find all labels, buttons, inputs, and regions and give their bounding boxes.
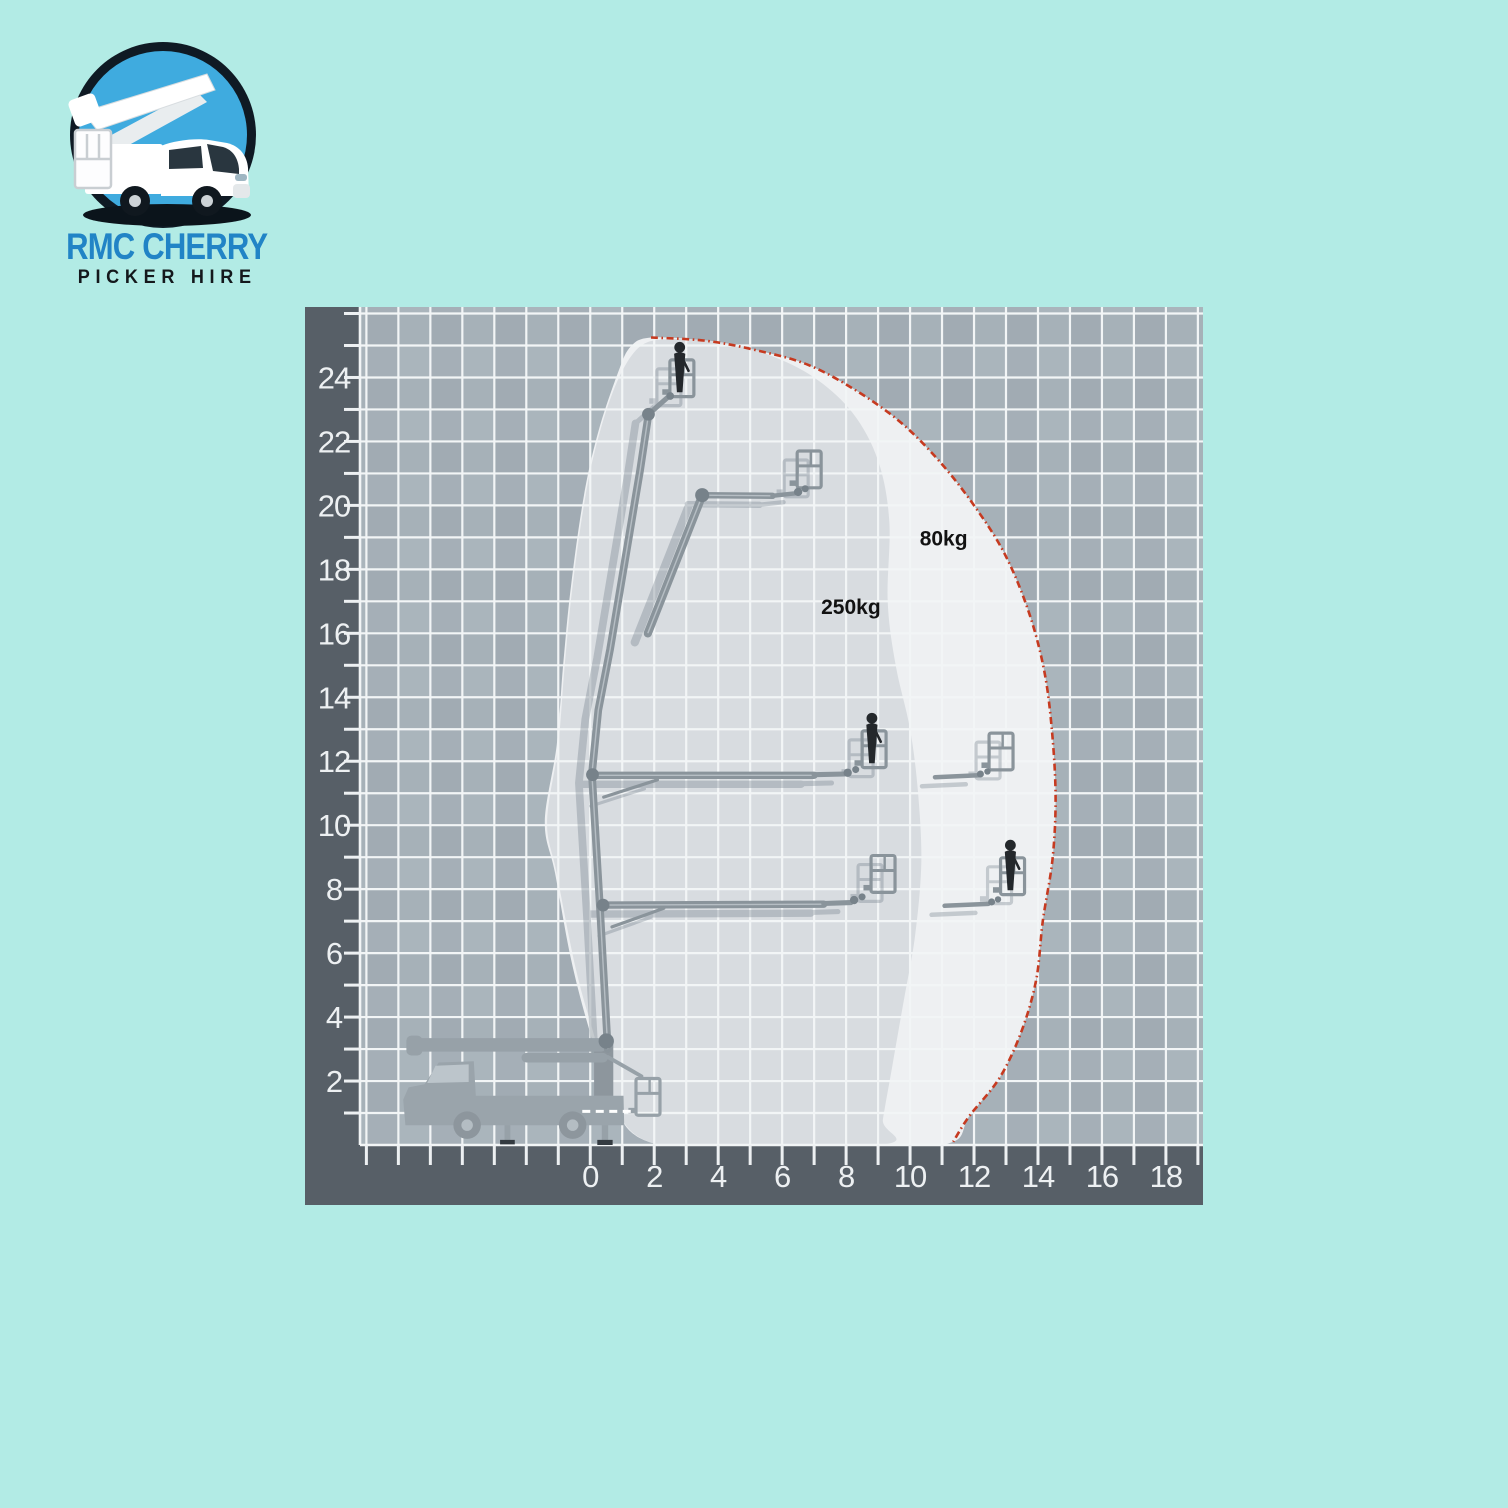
x-tick-label: 14 — [1022, 1159, 1055, 1194]
envelope-diagram: 02468101214161824681012141618202224 80kg… — [305, 307, 1203, 1205]
page-background: RMC CHERRY PICKER HIRE 02468101214161824… — [0, 0, 1508, 1508]
y-tick-label: 10 — [318, 808, 351, 843]
y-tick-label: 6 — [326, 936, 342, 971]
brand-tagline: PICKER HIRE — [47, 266, 287, 290]
y-tick-label: 2 — [326, 1064, 342, 1099]
y-tick-label: 20 — [318, 488, 351, 523]
y-tick-label: 14 — [318, 680, 351, 715]
x-tick-label: 16 — [1086, 1159, 1118, 1194]
x-tick-label: 10 — [894, 1159, 927, 1194]
x-tick-label: 6 — [774, 1159, 790, 1194]
x-tick-label: 0 — [582, 1159, 599, 1194]
y-tick-label: 18 — [318, 552, 350, 587]
y-tick-label: 4 — [326, 1000, 343, 1035]
x-tick-label: 12 — [958, 1159, 990, 1194]
y-tick-label: 8 — [326, 872, 342, 907]
working-envelope-chart: 02468101214161824681012141618202224 80kg… — [305, 307, 1203, 1205]
x-tick-label: 2 — [646, 1159, 662, 1194]
logo: RMC CHERRY PICKER HIRE — [47, 40, 287, 285]
x-tick-label: 4 — [710, 1159, 727, 1194]
x-tick-label: 8 — [838, 1159, 854, 1194]
brand-name: RMC CHERRY — [47, 228, 287, 266]
y-tick-label: 22 — [318, 424, 350, 459]
y-tick-label: 16 — [318, 616, 350, 651]
zone-label-80kg: 80kg — [920, 527, 968, 550]
x-tick-label: 18 — [1150, 1159, 1182, 1194]
y-tick-label: 12 — [318, 744, 350, 779]
y-tick-label: 24 — [318, 360, 351, 395]
logo-shadow — [83, 204, 251, 226]
zone-label-250kg: 250kg — [821, 596, 881, 619]
logo-truck-icon — [57, 40, 277, 240]
